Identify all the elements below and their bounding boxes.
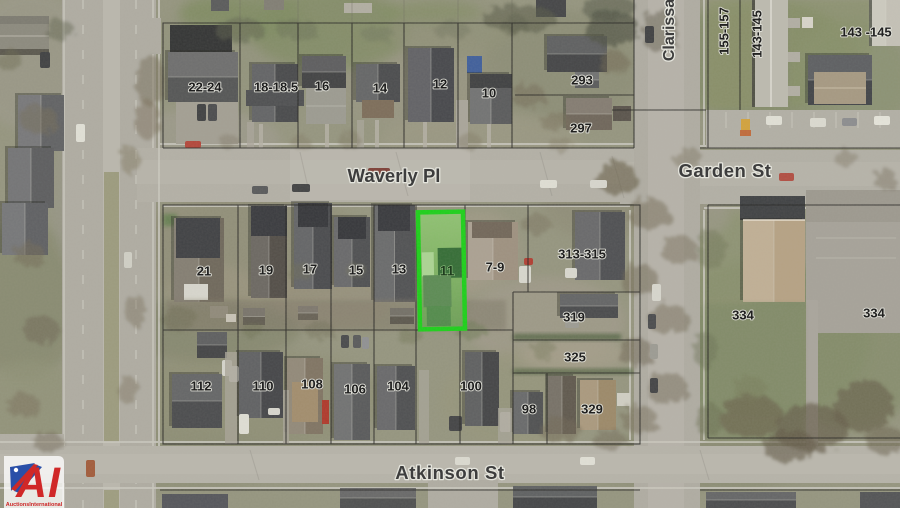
svg-text:7-9: 7-9 bbox=[486, 259, 505, 274]
svg-text:Garden St: Garden St bbox=[679, 160, 772, 181]
svg-text:334: 334 bbox=[732, 307, 754, 322]
svg-text:11: 11 bbox=[440, 263, 455, 279]
svg-text:AuctionsInternational: AuctionsInternational bbox=[6, 502, 63, 508]
svg-text:100: 100 bbox=[460, 378, 482, 393]
svg-text:16: 16 bbox=[315, 78, 329, 93]
svg-text:Waverly Pl: Waverly Pl bbox=[348, 165, 441, 186]
svg-text:104: 104 bbox=[387, 378, 409, 393]
svg-text:325: 325 bbox=[564, 349, 586, 364]
svg-text:21: 21 bbox=[197, 263, 211, 278]
svg-text:329: 329 bbox=[581, 401, 603, 416]
svg-text:106: 106 bbox=[344, 381, 366, 396]
svg-text:15: 15 bbox=[349, 262, 363, 277]
svg-text:319: 319 bbox=[563, 309, 585, 324]
svg-text:293: 293 bbox=[571, 72, 593, 87]
svg-text:19: 19 bbox=[259, 262, 273, 277]
svg-text:155-157: 155-157 bbox=[716, 7, 731, 55]
svg-text:13: 13 bbox=[392, 261, 406, 276]
svg-text:14: 14 bbox=[373, 80, 388, 95]
svg-text:98: 98 bbox=[522, 401, 536, 416]
svg-text:143-145: 143-145 bbox=[749, 10, 764, 58]
svg-text:AI: AI bbox=[15, 459, 61, 507]
svg-text:Clarissa: Clarissa bbox=[661, 0, 678, 61]
svg-text:22-24: 22-24 bbox=[188, 79, 222, 94]
svg-text:334: 334 bbox=[863, 305, 885, 320]
svg-text:110: 110 bbox=[253, 378, 274, 393]
svg-text:108: 108 bbox=[301, 376, 323, 391]
svg-text:112: 112 bbox=[191, 378, 212, 393]
svg-text:18-18.5: 18-18.5 bbox=[254, 79, 298, 94]
svg-text:10: 10 bbox=[482, 85, 496, 100]
svg-text:297: 297 bbox=[570, 120, 592, 135]
svg-text:313-315: 313-315 bbox=[558, 246, 606, 261]
svg-text:Atkinson St: Atkinson St bbox=[395, 462, 504, 483]
svg-text:143 -145: 143 -145 bbox=[840, 24, 891, 39]
svg-text:12: 12 bbox=[433, 76, 447, 91]
svg-text:17: 17 bbox=[303, 261, 317, 276]
